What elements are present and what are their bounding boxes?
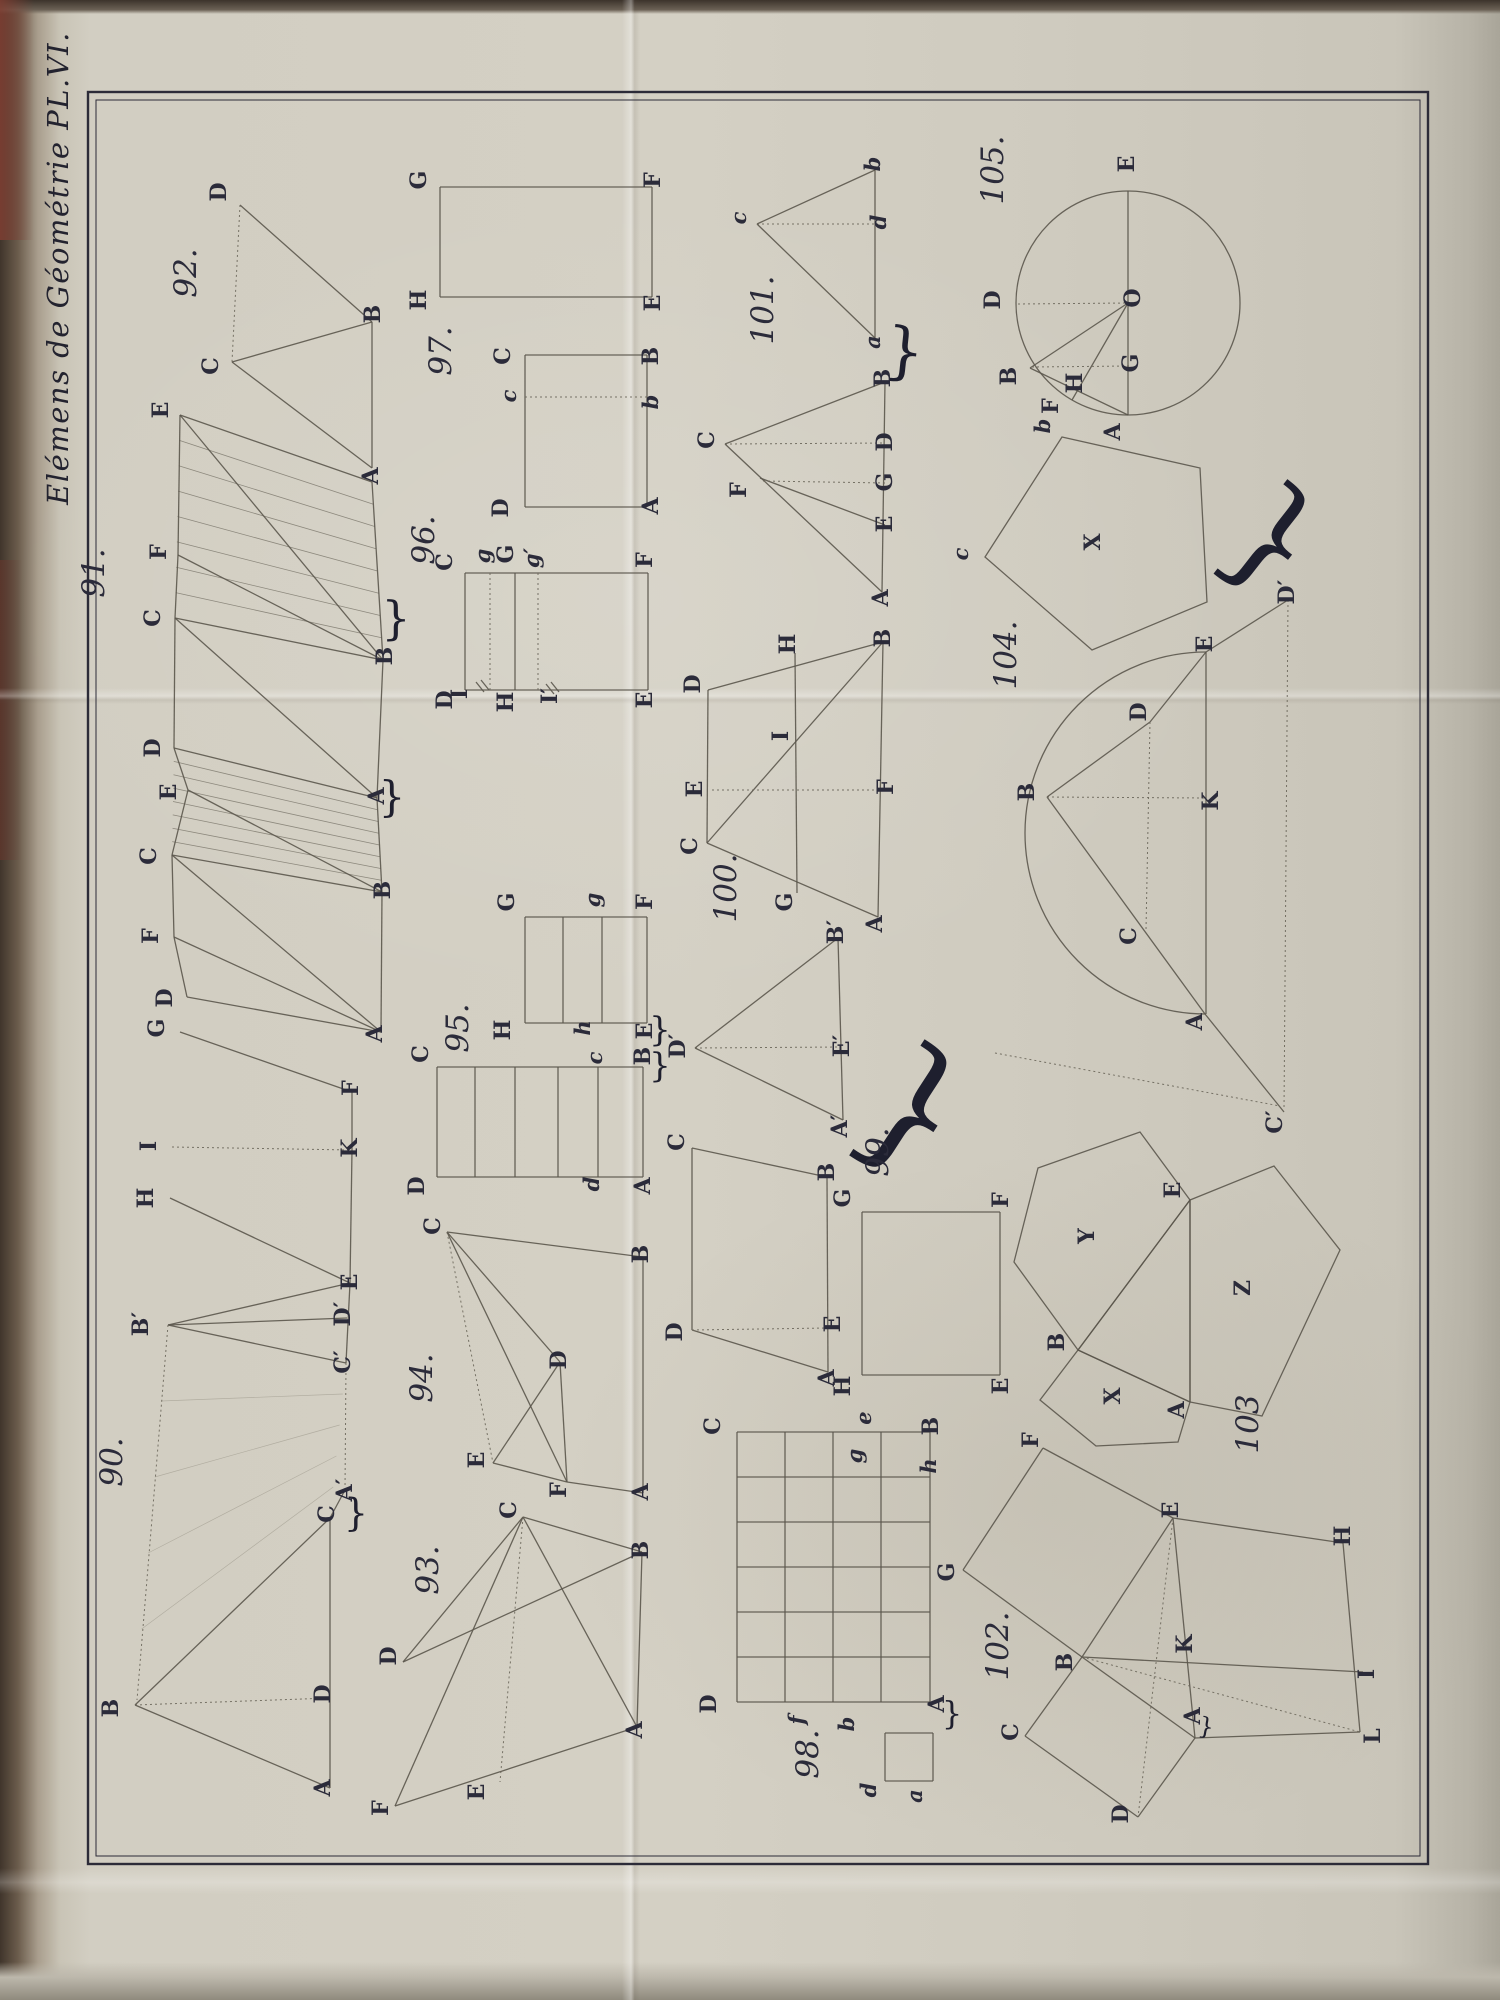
point-label: c — [726, 211, 751, 224]
figure-line — [1205, 1014, 1284, 1112]
figure-line — [1082, 1657, 1363, 1672]
point-label: G — [772, 893, 798, 912]
figure-dotted-line — [1047, 797, 1204, 798]
point-label: f — [784, 1712, 809, 1727]
figure-line — [187, 997, 381, 1032]
point-label: G — [934, 1563, 960, 1582]
point-label: B — [372, 647, 398, 666]
point-label: D — [662, 1322, 688, 1341]
figure-90: }GIHB′BFKED′C′A′CDA90. — [94, 1019, 368, 1798]
point-label: G — [144, 1019, 170, 1038]
point-label: H — [1062, 373, 1088, 394]
figure-line — [760, 478, 885, 525]
figure-number: 104. — [988, 620, 1024, 689]
figure-dotted-line — [1146, 722, 1150, 930]
figure-103: YZXEBA103 — [1014, 1132, 1340, 1454]
point-label: G — [1118, 354, 1144, 373]
figure-line — [174, 748, 377, 798]
point-label: E — [337, 1274, 363, 1291]
point-label: H — [1330, 1526, 1356, 1547]
point-label: D — [1108, 1804, 1134, 1823]
point-label: C — [140, 609, 166, 627]
hatch-line — [178, 517, 378, 572]
point-label: E′ — [829, 1035, 855, 1058]
point-label: a — [860, 335, 885, 349]
point-label: F — [988, 1192, 1014, 1208]
figure-line — [695, 938, 838, 1048]
point-label: d — [866, 214, 891, 229]
point-label: I — [1354, 1669, 1380, 1679]
point-label: A′ — [827, 1114, 853, 1138]
point-label: B — [870, 629, 896, 648]
figure-dotted-line — [500, 1517, 523, 1782]
hatch-line — [177, 542, 379, 593]
point-label: F — [1038, 398, 1064, 414]
point-label: h — [916, 1458, 941, 1473]
point-label: Y — [1074, 1228, 1100, 1245]
figure-line — [172, 855, 382, 892]
figure-line — [180, 415, 383, 660]
point-label: E — [682, 781, 708, 798]
figure-line — [381, 892, 382, 1032]
point-label: D′ — [1274, 579, 1300, 604]
figure-number: 95. — [440, 1003, 476, 1052]
figure-line — [188, 790, 382, 892]
figure-line — [963, 1448, 1043, 1570]
figure-line — [447, 1232, 560, 1362]
figure-line — [1030, 303, 1128, 368]
point-label: F — [632, 894, 658, 910]
point-label: F — [146, 544, 172, 560]
figure-line — [178, 415, 180, 555]
point-label: e — [851, 1411, 876, 1424]
point-label: D — [696, 1694, 722, 1713]
point-label: Z — [1230, 1280, 1256, 1296]
figure-number: 93. — [410, 1545, 446, 1594]
figure-line — [725, 382, 885, 444]
point-label: F — [632, 552, 658, 568]
point-label: G — [872, 473, 898, 492]
figure-102: }FGEBCDAKHIL102. — [934, 1432, 1386, 1824]
plate-frame-outer — [88, 92, 1428, 1864]
point-label: D — [546, 1350, 572, 1369]
point-label: b — [834, 1717, 859, 1732]
figure-line — [178, 555, 383, 660]
figure-line — [174, 937, 381, 1032]
point-label: A — [628, 1483, 654, 1502]
point-label: H — [490, 1020, 516, 1041]
point-label: B — [1044, 1333, 1070, 1352]
point-label: A — [868, 589, 894, 608]
figure-line — [523, 1517, 642, 1552]
hatch-line — [174, 761, 378, 809]
point-label: A — [622, 1721, 648, 1740]
point-label: C — [1116, 927, 1142, 945]
figure-line — [174, 618, 175, 748]
point-label: F — [726, 482, 752, 498]
point-label: B — [1014, 783, 1040, 802]
figure-dotted-line — [1018, 303, 1128, 304]
point-label: H — [830, 1376, 856, 1397]
point-label: B — [98, 1699, 124, 1718]
point-label: G — [493, 545, 519, 564]
hatch-line — [173, 788, 379, 833]
hatch-line — [178, 491, 376, 549]
figure-100: DHBCGAEFID′B′E′A′100. — [665, 629, 899, 1139]
figure-number: 92. — [168, 248, 204, 297]
point-label: E — [464, 1452, 490, 1469]
figure-line — [174, 937, 187, 997]
figure-dotted-line — [692, 1328, 828, 1330]
figure-101: }cbadCBDGEAF101. — [694, 157, 928, 608]
figure-line — [170, 1198, 350, 1283]
point-label: B — [630, 1047, 656, 1066]
point-label: D — [206, 182, 232, 201]
point-label: d — [579, 1176, 604, 1191]
figure-dotted-line — [1032, 366, 1130, 367]
point-label: D — [980, 290, 1006, 309]
point-label: E — [632, 1023, 658, 1040]
figure-95: }}GgFHhECcBDdA95. — [404, 893, 671, 1196]
point-label: C′ — [330, 1350, 356, 1374]
figure-polygon — [1190, 1166, 1340, 1416]
figure-line — [637, 1552, 642, 1727]
point-label: A — [630, 1177, 656, 1196]
point-label: E — [1192, 636, 1218, 653]
point-label: C — [136, 847, 162, 865]
point-label: E — [148, 402, 174, 419]
point-label: C — [694, 431, 720, 449]
point-label: H — [493, 692, 519, 713]
figure-line — [1138, 1738, 1195, 1817]
figure-line — [1195, 1732, 1360, 1738]
point-label: F — [640, 172, 666, 188]
point-label: b — [638, 395, 663, 410]
point-label: C — [664, 1133, 690, 1151]
point-label: C — [314, 1505, 340, 1523]
point-label: B — [1052, 1653, 1078, 1672]
figure-arc — [1025, 652, 1206, 1014]
point-label: A — [638, 497, 664, 516]
figure-number: 90. — [94, 1437, 130, 1486]
figure-number: 99. — [860, 1127, 896, 1176]
point-label: F — [546, 1482, 572, 1498]
figure-number: 91. — [76, 548, 112, 597]
point-label: F — [138, 928, 164, 944]
hatch-line — [179, 466, 375, 527]
figure-line — [757, 170, 875, 224]
point-label: K — [337, 1138, 363, 1158]
point-label: C′ — [1262, 1110, 1288, 1134]
point-label: A — [1164, 1401, 1190, 1420]
figure-99: }CBDAEGFHE99. — [662, 1009, 1014, 1396]
figure-dotted-line — [1284, 600, 1288, 1110]
point-label: I′ — [537, 688, 563, 704]
point-label: E — [464, 1784, 490, 1801]
point-label: K — [1172, 1634, 1198, 1654]
point-label: B — [918, 1417, 944, 1436]
point-label: C — [490, 347, 516, 365]
figure-line — [707, 690, 708, 843]
point-label: D — [310, 1684, 336, 1703]
point-label: A — [1180, 1707, 1206, 1726]
point-label: C — [677, 837, 703, 855]
point-label: L — [1360, 1728, 1386, 1743]
figure-line — [692, 1148, 827, 1177]
point-label: B — [814, 1163, 840, 1182]
point-label: E — [156, 784, 182, 801]
point-label: A — [358, 467, 384, 486]
figure-number: 94. — [404, 1353, 440, 1402]
figure-line — [180, 1032, 352, 1092]
figure-line — [1173, 1518, 1195, 1738]
point-label: g — [580, 893, 605, 908]
figure-line — [350, 1150, 352, 1283]
figure-number: 97. — [423, 326, 459, 375]
plate-figures-canvas: DCBA92.}}EFCDECFDBABA91.}GIHB′BFKED′C′A′… — [0, 0, 1500, 2000]
point-label: H — [775, 634, 801, 655]
figure-line — [1150, 652, 1206, 722]
figure-93: CDFEAB93. — [368, 1501, 654, 1816]
hatch-line — [173, 802, 380, 846]
figure-line — [692, 1330, 828, 1372]
point-label: I — [136, 1141, 162, 1151]
point-label: G — [830, 1189, 856, 1208]
point-label: b — [1030, 419, 1055, 434]
point-label: H — [133, 1188, 159, 1209]
point-label: c — [948, 547, 973, 560]
point-label: c — [582, 1051, 607, 1064]
figure-dotted-line — [345, 1363, 346, 1490]
point-label: D′ — [330, 1301, 356, 1326]
point-label: D′ — [665, 1033, 691, 1058]
figure-94: CBDEFA94. — [404, 1217, 654, 1501]
point-label: D — [872, 432, 898, 451]
point-label: X — [1100, 1387, 1126, 1405]
point-label: A — [924, 1695, 950, 1714]
point-label: E — [1160, 1182, 1186, 1199]
point-label: C — [198, 357, 224, 375]
point-label: E — [1114, 156, 1140, 173]
point-label: C — [998, 1723, 1024, 1741]
figure-97: GHFECcDBbA97. — [406, 171, 666, 518]
figure-number: 103 — [1230, 1394, 1266, 1453]
point-label: B — [638, 347, 664, 366]
figure-line — [135, 1705, 330, 1788]
figure-dotted-line — [172, 1147, 352, 1150]
point-label: C — [408, 1045, 434, 1063]
point-label: B′ — [823, 920, 849, 945]
point-label: A — [862, 915, 888, 934]
point-label: B — [870, 369, 896, 388]
figure-dotted-line — [695, 1047, 840, 1048]
figure-line — [725, 444, 882, 592]
point-label: I — [768, 731, 794, 741]
point-label: E — [1158, 1502, 1184, 1519]
figure-line — [172, 855, 381, 1032]
figure-line — [232, 362, 372, 468]
point-label: F — [1018, 1432, 1044, 1448]
point-label: H — [406, 290, 432, 311]
figure-line — [175, 618, 383, 660]
figure-dotted-line — [725, 443, 885, 444]
point-label: d — [856, 1782, 881, 1797]
figure-105: EDOGBHFA105. — [975, 135, 1240, 441]
point-label: A — [1182, 1013, 1208, 1032]
point-label: C — [700, 1417, 726, 1435]
plate-frame-inner — [96, 100, 1420, 1856]
figure-line — [795, 653, 797, 893]
figure-number: 96. — [406, 515, 442, 564]
figure-line — [695, 1048, 843, 1120]
figure-line — [560, 1362, 567, 1482]
figure-line — [175, 618, 377, 798]
figure-number: 100. — [708, 853, 744, 922]
figure-line — [1078, 1350, 1190, 1402]
figure-dotted-line — [137, 1325, 168, 1700]
figure-line — [175, 555, 178, 618]
point-label: A — [362, 1025, 388, 1044]
figure-line — [481, 680, 489, 690]
figure-line — [1043, 1448, 1173, 1518]
point-label: D — [152, 988, 178, 1007]
point-label: B — [360, 305, 386, 324]
point-label: F — [368, 1800, 394, 1816]
figure-line — [1047, 797, 1205, 1014]
point-label: E — [988, 1378, 1014, 1395]
point-label: B — [628, 1245, 654, 1264]
figure-dotted-line — [447, 1232, 493, 1463]
point-label: a — [902, 1789, 927, 1803]
figure-line — [447, 1232, 643, 1257]
point-label: G — [406, 171, 432, 190]
point-label: g — [470, 549, 495, 564]
point-label: A — [310, 1779, 336, 1798]
point-label: g — [842, 1449, 867, 1464]
point-label: g′ — [519, 547, 544, 568]
figure-line — [1082, 1657, 1195, 1738]
figure-number: 98. — [790, 1729, 826, 1778]
point-label: D — [376, 1646, 402, 1665]
point-label: B — [996, 367, 1022, 386]
figure-dotted-line — [135, 1698, 330, 1705]
figure-line — [838, 938, 843, 1120]
point-label: c — [496, 389, 521, 402]
point-label: b — [860, 157, 885, 172]
point-label: F — [873, 779, 899, 795]
point-label: D — [680, 674, 706, 693]
point-label: D — [1126, 702, 1152, 721]
point-label: E — [820, 1316, 846, 1333]
point-label: D — [404, 1176, 430, 1195]
figure-line — [1047, 722, 1150, 797]
figure-line — [827, 1177, 828, 1372]
point-label: B — [628, 1541, 654, 1560]
figure-line — [172, 855, 174, 937]
point-label: E — [640, 295, 666, 312]
figure-91: }}EFCDECFDBABA91. — [76, 402, 411, 1044]
hatch-line — [176, 593, 382, 638]
point-label: F — [338, 1080, 364, 1096]
figure-line — [1082, 1518, 1173, 1657]
figure-number: 101. — [745, 275, 781, 344]
point-label: E — [632, 692, 658, 709]
figure-number: 105. — [975, 135, 1011, 204]
point-label: D — [140, 738, 166, 757]
figure-line — [168, 1325, 346, 1363]
figure-line — [1078, 1200, 1190, 1350]
figure-line — [395, 1727, 637, 1806]
figure-line — [493, 1463, 567, 1482]
figure-dotted-line — [995, 1053, 1280, 1106]
figure-96: CgGg′FDIHI′E96. — [406, 515, 658, 712]
scanned-plate-page: Elémens de Géométrie PL.VI. DCBA92.}}EFC… — [0, 0, 1500, 2000]
point-label: A′ — [332, 1478, 358, 1502]
figure-98: }CBDAeghfbda98. — [696, 1411, 962, 1802]
figure-line — [232, 322, 372, 362]
point-label: E — [872, 516, 898, 533]
point-label: O — [1120, 288, 1146, 307]
figure-line — [523, 1517, 637, 1727]
hatch-line — [155, 1425, 340, 1477]
figure-line — [135, 1518, 330, 1705]
point-label: A — [1100, 423, 1126, 442]
point-label: X — [1080, 533, 1106, 551]
hatch-line — [173, 828, 381, 868]
figure-dotted-line — [232, 205, 240, 362]
point-label: h — [570, 1020, 595, 1035]
hatch-line — [161, 1394, 342, 1401]
point-label: B′ — [128, 1312, 154, 1337]
point-label: C — [496, 1501, 522, 1519]
figure-dotted-line — [1082, 1657, 1360, 1732]
brace-decoration: } — [381, 591, 410, 645]
point-label: K — [1198, 791, 1224, 811]
figure-dotted-line — [763, 481, 885, 483]
figure-line — [1343, 1543, 1360, 1732]
figure-104: }bcXD′EDBKCAC′104. — [948, 419, 1353, 1134]
point-label: A — [364, 787, 390, 806]
figure-number: 102. — [980, 1611, 1016, 1680]
point-label: D — [488, 498, 514, 517]
hatch-line — [176, 567, 380, 615]
point-label: I — [447, 689, 473, 699]
figure-line — [240, 205, 372, 322]
figure-line — [1173, 1518, 1343, 1543]
point-label: B — [370, 881, 396, 900]
point-label: G — [494, 893, 520, 912]
point-label: C — [420, 1217, 446, 1235]
